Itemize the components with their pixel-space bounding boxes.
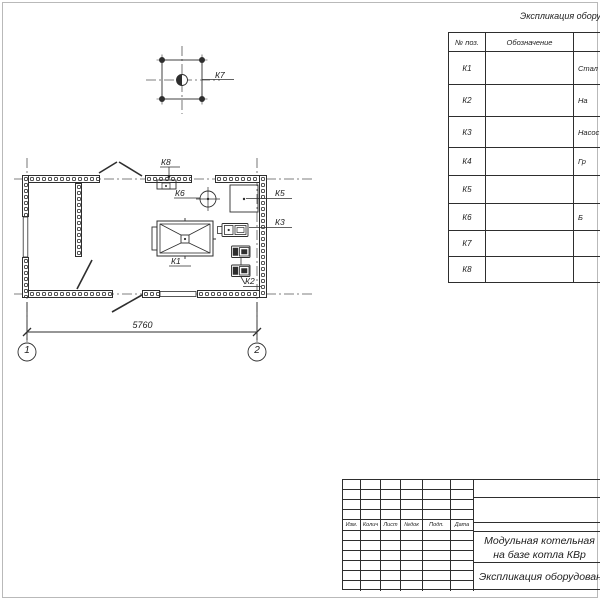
doc-cell — [474, 498, 600, 523]
label-k6: К6 — [175, 188, 185, 198]
cell-name — [574, 257, 600, 282]
equip-table-title: Экспликация оборудования — [520, 11, 600, 21]
cell-name — [574, 231, 600, 256]
label-k7: К7 — [215, 70, 225, 80]
revision-header-row: Изм. Колич Лист №док Подп. Дата — [343, 520, 473, 531]
project-title: Модульная котельная на базе котла КВр — [474, 532, 600, 563]
window-left-wall — [23, 217, 28, 257]
revision-row — [343, 500, 473, 510]
revision-row — [343, 581, 473, 591]
cell-name — [574, 176, 600, 203]
axis-bubble-2: 2 — [248, 345, 266, 359]
revision-row — [343, 551, 473, 561]
col-kolich: Колич — [361, 520, 381, 530]
revision-row — [343, 531, 473, 541]
revision-row — [343, 561, 473, 571]
window-bottom-wall — [160, 292, 196, 297]
revision-row — [343, 480, 473, 490]
cell-designation — [486, 257, 574, 282]
k8-box-symbol — [157, 167, 180, 189]
table-row: К6 Б — [449, 203, 600, 230]
dimension-text: 5760 — [120, 320, 165, 330]
cell-pos: К2 — [449, 85, 486, 116]
table-row: К3 Насос — [449, 116, 600, 147]
table-row: К4 Гр — [449, 147, 600, 175]
label-k5: К5 — [275, 188, 285, 198]
table-row: К1 Стал — [449, 51, 600, 84]
table-header-row: № поз. Обозначение — [449, 33, 600, 51]
title-block-revision-grid: Изм. Колич Лист №док Подп. Дата — [343, 480, 473, 591]
cell-designation — [486, 52, 574, 84]
col-header-pos: № поз. — [449, 33, 486, 51]
label-k2: К2 — [245, 276, 255, 286]
cell-name: Гр — [574, 148, 600, 175]
label-k1: К1 — [171, 256, 181, 266]
label-k8: К8 — [161, 157, 171, 167]
equip-table: № поз. Обозначение К1 Стал К2 На К3 Насо… — [448, 32, 600, 283]
col-ndok: №док — [401, 520, 423, 530]
cell-pos: К1 — [449, 52, 486, 84]
door-leaf-partition — [77, 260, 92, 289]
dimension-5760 — [18, 302, 266, 361]
col-izm: Изм. — [343, 520, 361, 530]
table-row: К7 — [449, 230, 600, 256]
title-block: Изм. Колич Лист №док Подп. Дата — [342, 479, 600, 590]
revision-row — [343, 510, 473, 520]
col-list: Лист — [381, 520, 401, 530]
door-leaf-top-right — [119, 162, 142, 176]
cell-pos: К5 — [449, 176, 486, 203]
col-header-name — [574, 33, 600, 51]
axis-bubble-1: 1 — [18, 345, 36, 359]
cell-pos: К6 — [449, 204, 486, 230]
cell-designation — [486, 85, 574, 116]
project-title-line1: Модульная котельная — [474, 534, 600, 548]
cell-pos: К8 — [449, 257, 486, 282]
cell-name: Стал — [574, 52, 600, 84]
col-data: Дата — [451, 520, 473, 530]
cell-designation — [486, 204, 574, 230]
cell-designation — [486, 148, 574, 175]
sheet-title: Экспликация оборудования — [474, 563, 600, 591]
table-row: К5 — [449, 175, 600, 203]
table-row: К8 — [449, 256, 600, 282]
cell-name: На — [574, 85, 600, 116]
label-k3: К3 — [275, 217, 285, 227]
doc-cell — [474, 523, 600, 532]
cell-designation — [486, 117, 574, 147]
revision-row — [343, 541, 473, 551]
cell-name: Б — [574, 204, 600, 230]
door-leaf-top-left — [99, 162, 117, 173]
cell-pos: К3 — [449, 117, 486, 147]
title-block-right: Модульная котельная на базе котла КВр Эк… — [473, 480, 600, 591]
revision-row — [343, 571, 473, 581]
col-podp: Подп. — [423, 520, 451, 530]
cell-pos: К7 — [449, 231, 486, 256]
revision-row — [343, 490, 473, 500]
table-row: К2 На — [449, 84, 600, 116]
doc-cell — [474, 480, 600, 498]
cell-name: Насос — [574, 117, 600, 147]
project-title-line2: на базе котла КВр — [474, 548, 600, 562]
drawing-sheet: К7 К8 К6 К5 К3 К2 К1 5760 1 2 Экспликаци… — [0, 0, 600, 600]
cell-designation — [486, 231, 574, 256]
col-header-designation: Обозначение — [486, 33, 574, 51]
cell-designation — [486, 176, 574, 203]
cell-pos: К4 — [449, 148, 486, 175]
k1-boiler-symbol — [152, 218, 216, 266]
door-leaf-bottom — [112, 295, 142, 312]
